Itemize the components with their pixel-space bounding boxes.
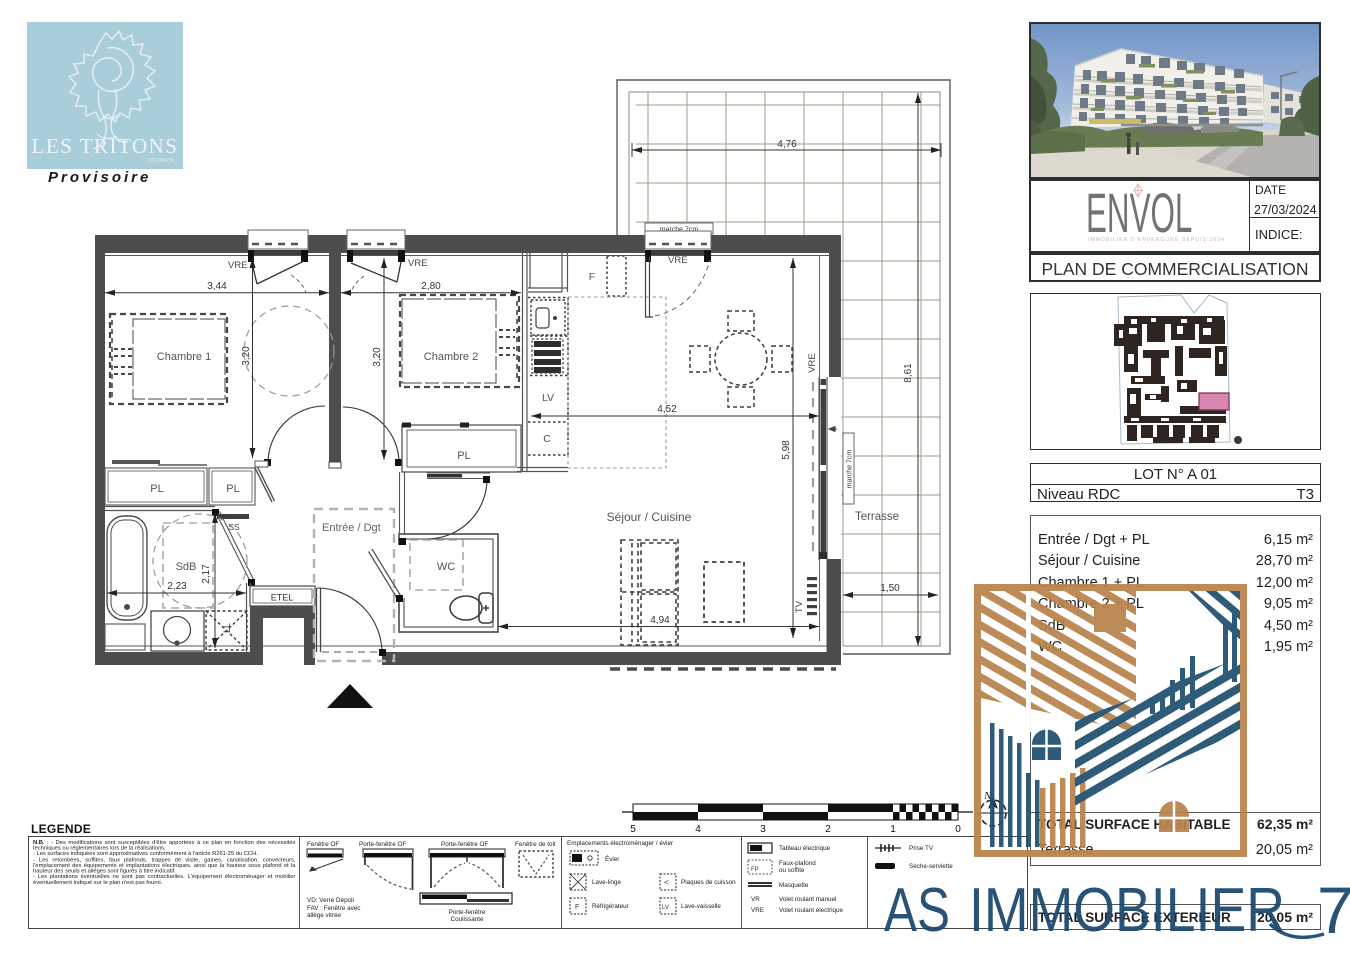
- svg-text:4,94: 4,94: [650, 615, 670, 626]
- svg-text:0: 0: [955, 824, 961, 835]
- svg-text:Séjour / Cuisine: Séjour / Cuisine: [607, 510, 692, 524]
- svg-text:PL: PL: [457, 450, 470, 462]
- svg-text:Chambre 1: Chambre 1: [157, 351, 211, 363]
- svg-text:SdB: SdB: [176, 561, 197, 573]
- svg-text:VRE: VRE: [807, 353, 818, 373]
- svg-text:3,20: 3,20: [372, 347, 383, 367]
- svg-text:3,44: 3,44: [207, 281, 227, 292]
- svg-text:F: F: [575, 904, 579, 911]
- svg-text:AS: AS: [884, 876, 950, 945]
- svg-text:1: 1: [890, 824, 896, 835]
- svg-text:4: 4: [695, 824, 701, 835]
- svg-text:Terrasse: Terrasse: [855, 511, 899, 523]
- svg-text:5: 5: [630, 824, 636, 835]
- svg-text:1,50: 1,50: [880, 583, 900, 594]
- svg-text:F: F: [589, 271, 595, 283]
- svg-text:2,17: 2,17: [201, 564, 212, 584]
- svg-text:8,61: 8,61: [903, 363, 914, 383]
- svg-text:LL: LL: [222, 623, 232, 633]
- svg-text:2: 2: [825, 824, 831, 835]
- svg-text:VRE: VRE: [228, 260, 248, 271]
- svg-text:2,80: 2,80: [421, 281, 441, 292]
- svg-text:C: C: [543, 433, 551, 445]
- svg-text:LV: LV: [542, 392, 554, 404]
- svg-text:TV: TV: [794, 600, 805, 613]
- svg-text:2,23: 2,23: [167, 581, 187, 592]
- svg-text:ETEL: ETEL: [271, 593, 294, 603]
- svg-text:VRE: VRE: [668, 255, 688, 266]
- svg-text:FP: FP: [751, 867, 759, 873]
- svg-text:PL: PL: [150, 483, 163, 495]
- svg-text:SS: SS: [228, 522, 240, 532]
- svg-text:3: 3: [760, 824, 766, 835]
- svg-text:3,20: 3,20: [241, 346, 252, 366]
- svg-text:IMMOBILIER: IMMOBILIER: [969, 876, 1285, 945]
- svg-text:4,76: 4,76: [777, 139, 797, 150]
- svg-text:PL: PL: [226, 483, 239, 495]
- svg-text:4,52: 4,52: [657, 404, 677, 415]
- svg-text:marche 7cm: marche 7cm: [847, 450, 854, 489]
- svg-text:5,98: 5,98: [781, 440, 792, 460]
- svg-text:Chambre 2: Chambre 2: [424, 351, 478, 363]
- svg-text:WC: WC: [437, 561, 455, 573]
- svg-text:Entrée / Dgt: Entrée / Dgt: [322, 522, 381, 534]
- svg-text:LV: LV: [662, 905, 669, 911]
- svg-text:VRE: VRE: [408, 258, 428, 269]
- svg-text:<: <: [664, 878, 669, 887]
